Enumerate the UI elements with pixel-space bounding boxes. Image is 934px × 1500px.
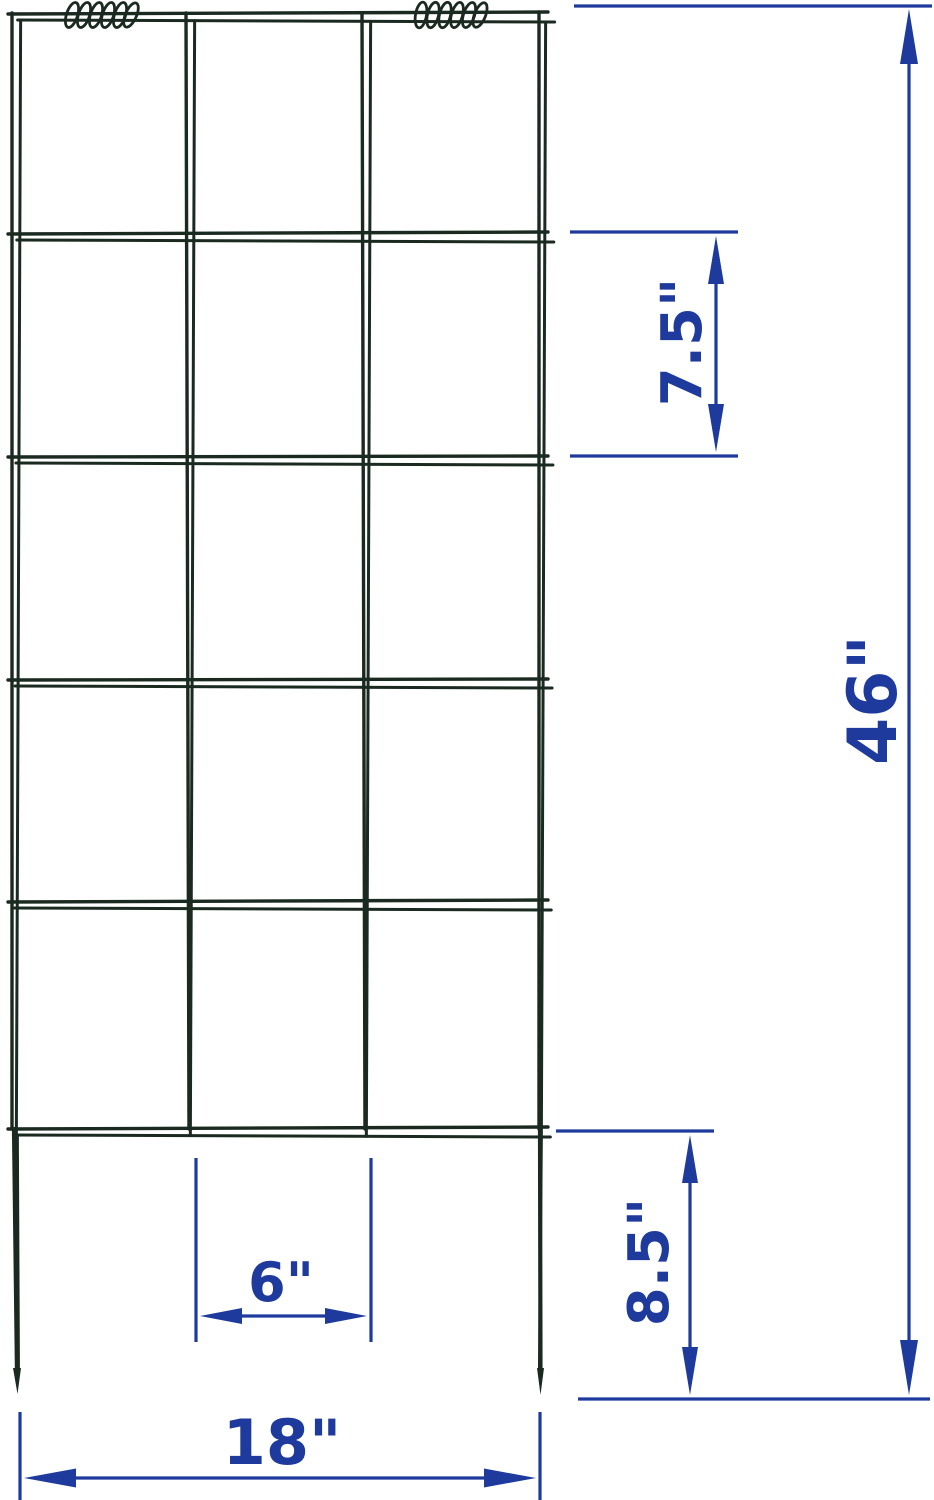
- wire-h-row4: [8, 900, 548, 902]
- cell-height-label: 7.5": [650, 278, 715, 406]
- wire-h-row2: [16, 463, 553, 465]
- wire-h-row1: [17, 240, 554, 242]
- wire-v-mid-left: [190, 21, 194, 1136]
- leg-left-shaft: [14, 1129, 17, 1375]
- dim-cell-height: 7.5": [570, 232, 738, 456]
- wire-h-row2: [8, 456, 548, 457]
- wire-v-left: [16, 20, 20, 1135]
- arrowhead-right: [325, 1308, 367, 1324]
- coil-loop: [470, 1, 490, 29]
- wire-v-mid-left: [186, 13, 189, 1129]
- wire-h-row3: [8, 679, 548, 680]
- leg-left-tip: [13, 1368, 21, 1394]
- arrowhead-down: [708, 404, 724, 452]
- trellis-leg-right: [537, 1129, 544, 1395]
- arrowhead-up: [900, 9, 918, 64]
- arrowhead-down: [682, 1347, 698, 1395]
- wire-v-right: [541, 22, 545, 1137]
- leg-right-tip: [537, 1368, 544, 1395]
- wire-v-mid-right: [366, 21, 370, 1136]
- arrowhead-right: [484, 1469, 536, 1488]
- wire-h-bottom: [8, 1127, 548, 1129]
- wire-h-bottom: [13, 1135, 550, 1137]
- arrowhead-up: [682, 1135, 698, 1183]
- wire-h-row1: [8, 232, 548, 234]
- wire-h-row4: [14, 908, 551, 910]
- total-height-label: 46": [834, 635, 913, 765]
- arrowhead-up: [708, 236, 724, 284]
- wire-v-mid-right: [362, 13, 365, 1129]
- trellis-grid-front-panel: [8, 12, 548, 1129]
- leg-right-shaft: [540, 1129, 541, 1375]
- dim-leg-height: 8.5": [556, 1131, 930, 1399]
- trellis: [8, 1, 555, 1395]
- trellis-grid-back-panel: [12, 20, 554, 1374]
- arrowhead-left: [24, 1469, 76, 1488]
- dim-cell-width: 6": [196, 1158, 371, 1342]
- diagram-canvas: 7.5" 46" 8.5" 6": [0, 0, 934, 1500]
- total-width-label: 18": [223, 1406, 342, 1479]
- dim-total-height: 46": [574, 6, 932, 1395]
- wire-h-row3: [15, 686, 552, 688]
- dim-total-width: 18": [20, 1406, 540, 1500]
- dimension-annotations: 7.5" 46" 8.5" 6": [20, 6, 932, 1500]
- leg-height-label: 8.5": [617, 1198, 682, 1326]
- cell-width-label: 6": [248, 1251, 314, 1314]
- trellis-dimension-diagram: 7.5" 46" 8.5" 6": [0, 0, 934, 1500]
- spring-clip-right: [413, 1, 490, 29]
- arrowhead-down: [900, 1340, 918, 1395]
- arrowhead-left: [200, 1308, 242, 1324]
